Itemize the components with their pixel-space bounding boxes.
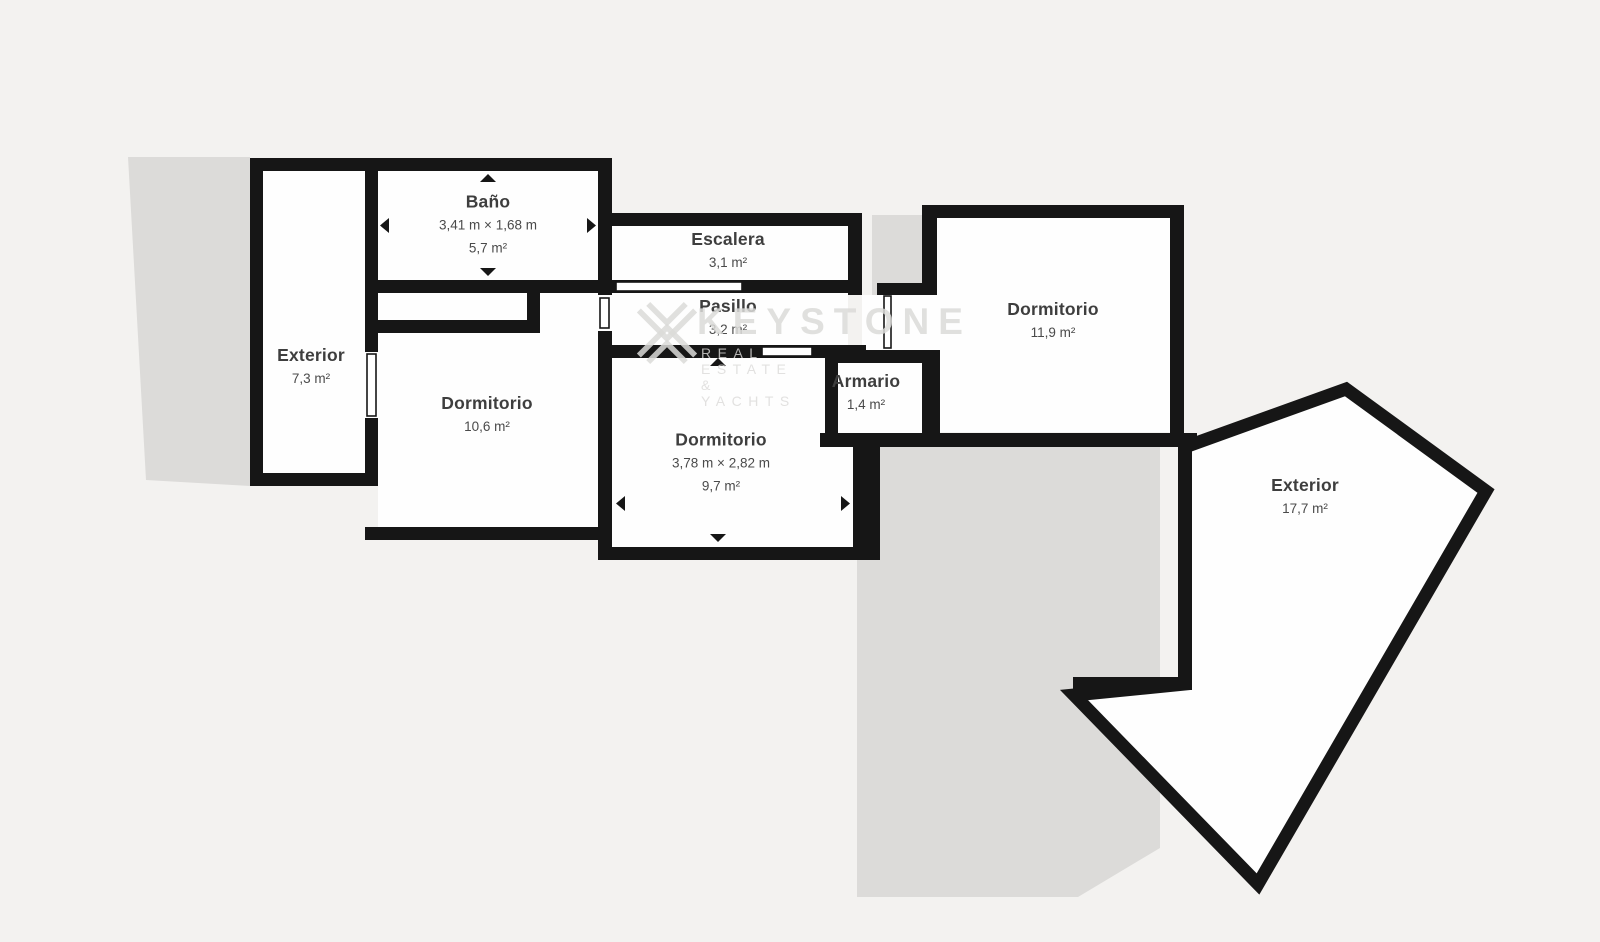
label-armario: Armario 1,4 m² bbox=[832, 371, 901, 415]
shadow-left bbox=[128, 157, 250, 486]
dormitorio2-dims: 3,78 m × 2,82 m bbox=[672, 453, 770, 473]
dormitorio3-name: Dormitorio bbox=[1007, 299, 1098, 320]
exterior-left-area: 7,3 m² bbox=[277, 369, 345, 389]
label-pasillo: Pasillo 3,2 m² bbox=[699, 296, 757, 340]
label-dormitorio1: Dormitorio 10,6 m² bbox=[441, 393, 532, 437]
door-leaf-dormitorio3 bbox=[884, 296, 891, 348]
dormitorio1-area: 10,6 m² bbox=[441, 417, 532, 437]
bano-name: Baño bbox=[439, 191, 537, 212]
door-leaf-dormitorio2 bbox=[762, 347, 812, 356]
armario-area: 1,4 m² bbox=[832, 395, 901, 415]
label-exterior-left: Exterior 7,3 m² bbox=[277, 345, 345, 389]
vestibule-floor bbox=[862, 295, 922, 350]
escalera-name: Escalera bbox=[691, 229, 765, 250]
dormitorio3-area: 11,9 m² bbox=[1007, 323, 1098, 343]
stair-opening-slot bbox=[616, 282, 742, 291]
label-dormitorio2: Dormitorio 3,78 m × 2,82 m 9,7 m² bbox=[672, 429, 770, 497]
pasillo-area: 3,2 m² bbox=[699, 320, 757, 340]
exterior-right-name: Exterior bbox=[1271, 475, 1339, 496]
escalera-area: 3,1 m² bbox=[691, 253, 765, 273]
dormitorio3-entry-floor bbox=[922, 295, 937, 350]
label-bano: Baño 3,41 m × 1,68 m 5,7 m² bbox=[439, 191, 537, 259]
dormitorio2-area: 9,7 m² bbox=[672, 477, 770, 497]
window-leaf-exterior-dormitorio1 bbox=[367, 354, 376, 416]
dormitorio2-name: Dormitorio bbox=[672, 429, 770, 450]
hall-nook-floor bbox=[540, 293, 598, 333]
label-dormitorio3: Dormitorio 11,9 m² bbox=[1007, 299, 1098, 343]
door-leaf-pasillo-left bbox=[600, 298, 609, 328]
exterior-left-name: Exterior bbox=[277, 345, 345, 366]
dormitorio1-name: Dormitorio bbox=[441, 393, 532, 414]
armario-name: Armario bbox=[832, 371, 901, 392]
label-exterior-right: Exterior 17,7 m² bbox=[1271, 475, 1339, 519]
exterior-right-area: 17,7 m² bbox=[1271, 499, 1339, 519]
exterior-left-floor bbox=[263, 171, 365, 473]
hall-strip-floor bbox=[378, 293, 527, 320]
pasillo-name: Pasillo bbox=[699, 296, 757, 317]
bano-area: 5,7 m² bbox=[439, 239, 537, 259]
floorplan-drawing bbox=[0, 0, 1600, 942]
floorplan-page: Baño 3,41 m × 1,68 m 5,7 m² Escalera 3,1… bbox=[0, 0, 1600, 942]
bano-dims: 3,41 m × 1,68 m bbox=[439, 215, 537, 235]
label-escalera: Escalera 3,1 m² bbox=[691, 229, 765, 273]
shadow-bottom bbox=[857, 446, 1160, 897]
